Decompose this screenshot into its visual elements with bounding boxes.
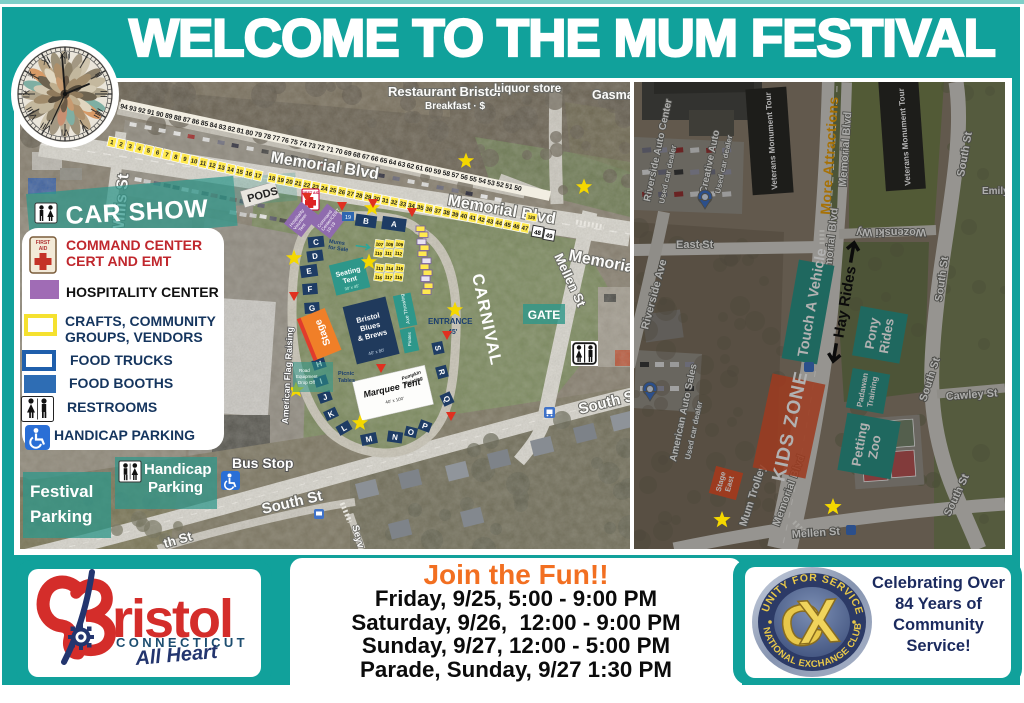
svg-text:Breakfast · $: Breakfast · $ xyxy=(425,101,485,112)
svg-text:111: 111 xyxy=(385,250,393,256)
svg-text:VI: VI xyxy=(61,128,70,138)
svg-text:19: 19 xyxy=(345,215,351,221)
svg-text:X: X xyxy=(795,586,841,658)
svg-text:Gasma: Gasma xyxy=(592,88,630,102)
svg-text:Equipment: Equipment xyxy=(296,374,318,379)
svg-text:C: C xyxy=(313,237,320,247)
svg-text:Restaurant Bristol: Restaurant Bristol xyxy=(388,84,501,99)
svg-text:F: F xyxy=(307,285,313,294)
svg-text:Picnic: Picnic xyxy=(338,371,354,377)
svg-text:Parking: Parking xyxy=(30,507,92,526)
svg-text:IX: IX xyxy=(22,90,32,99)
svg-text:GATE: GATE xyxy=(528,308,560,322)
svg-text:Pirates: Pirates xyxy=(407,331,413,346)
svg-text:Bus Stop: Bus Stop xyxy=(232,455,293,471)
svg-text:G: G xyxy=(309,304,316,313)
svg-text:112: 112 xyxy=(394,250,402,256)
svg-text:113: 113 xyxy=(375,265,383,271)
svg-text:110: 110 xyxy=(374,250,382,256)
svg-text:AID: AID xyxy=(39,246,48,252)
svg-text:114: 114 xyxy=(385,265,393,271)
svg-text:Handicap: Handicap xyxy=(144,461,212,478)
svg-text:Road: Road xyxy=(299,368,310,373)
svg-text:Festival: Festival xyxy=(30,482,93,501)
svg-text:118: 118 xyxy=(394,274,402,280)
svg-text:Parking: Parking xyxy=(148,479,203,496)
svg-text:Drop Off: Drop Off xyxy=(298,380,316,385)
svg-text:Tables: Tables xyxy=(338,378,355,384)
svg-text:Liquor store: Liquor store xyxy=(494,83,561,95)
svg-text:116: 116 xyxy=(374,274,382,280)
svg-text:III: III xyxy=(99,90,109,98)
svg-text:115: 115 xyxy=(395,265,403,271)
svg-text:ENTRANCE: ENTRANCE xyxy=(428,317,473,326)
svg-text:117: 117 xyxy=(384,274,392,280)
